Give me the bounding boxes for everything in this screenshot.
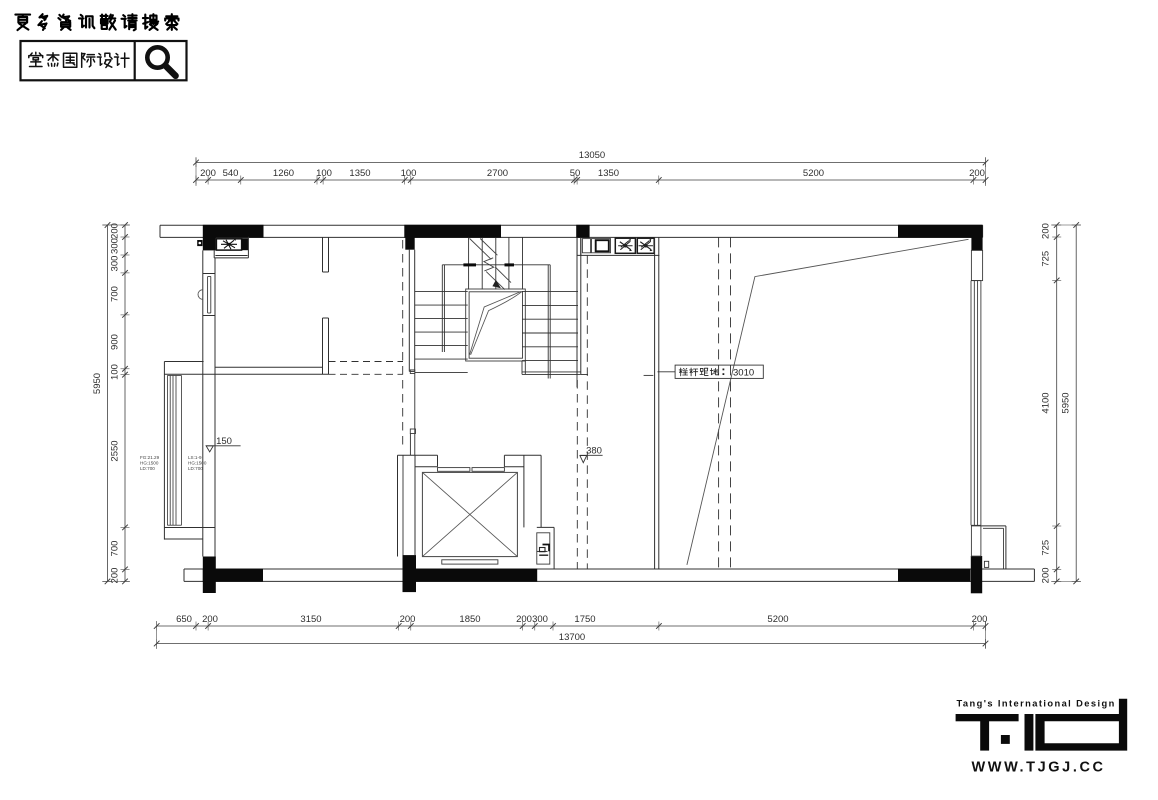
svg-text:700: 700 — [110, 286, 121, 302]
svg-text:100: 100 — [401, 168, 417, 179]
svg-text:HG:1500: HG:1500 — [140, 461, 159, 466]
svg-text:200: 200 — [516, 614, 532, 625]
svg-text:13050: 13050 — [579, 150, 605, 161]
svg-text:1260: 1260 — [273, 168, 294, 179]
svg-text:WWW.TJGJ.CC: WWW.TJGJ.CC — [972, 760, 1106, 776]
svg-text:LD:700: LD:700 — [140, 466, 155, 471]
svg-text:3010: 3010 — [733, 368, 754, 379]
svg-text:300: 300 — [110, 256, 121, 272]
svg-text:LD:700: LD:700 — [188, 466, 203, 471]
svg-text:5200: 5200 — [767, 614, 788, 625]
svg-text:50: 50 — [570, 168, 581, 179]
svg-text:1850: 1850 — [459, 614, 480, 625]
svg-text:200: 200 — [200, 168, 216, 179]
svg-text:1350: 1350 — [349, 168, 370, 179]
svg-text:200: 200 — [110, 223, 121, 239]
svg-text:300: 300 — [110, 238, 121, 254]
svg-text:2700: 2700 — [487, 168, 508, 179]
svg-text:200: 200 — [969, 168, 985, 179]
svg-text:725: 725 — [1041, 540, 1052, 556]
svg-text:5950: 5950 — [92, 373, 103, 394]
svg-text:1750: 1750 — [574, 614, 595, 625]
svg-text:4100: 4100 — [1041, 392, 1052, 413]
svg-text:Tang's International Design: Tang's International Design — [957, 698, 1116, 708]
svg-text:700: 700 — [110, 541, 121, 557]
svg-text:3150: 3150 — [300, 614, 321, 625]
svg-text:5200: 5200 — [803, 168, 824, 179]
svg-text:380: 380 — [586, 446, 602, 457]
svg-text:HG:1500: HG:1500 — [188, 461, 207, 466]
svg-text:200: 200 — [1041, 567, 1052, 583]
svg-text:100: 100 — [316, 168, 332, 179]
svg-text:200: 200 — [972, 614, 988, 625]
svg-text:FG:21.29: FG:21.29 — [140, 455, 160, 460]
svg-text:200: 200 — [110, 568, 121, 584]
svg-text:100: 100 — [110, 364, 121, 380]
svg-text:300: 300 — [532, 614, 548, 625]
svg-text:13700: 13700 — [559, 632, 585, 643]
svg-text:200: 200 — [1041, 223, 1052, 239]
svg-text:725: 725 — [1041, 251, 1052, 267]
svg-text:LS:1-9: LS:1-9 — [188, 455, 202, 460]
svg-text:200: 200 — [400, 614, 416, 625]
svg-text:150: 150 — [216, 436, 232, 447]
svg-text:540: 540 — [223, 168, 239, 179]
svg-text:650: 650 — [176, 614, 192, 625]
svg-text:200: 200 — [202, 614, 218, 625]
svg-text:1350: 1350 — [598, 168, 619, 179]
svg-text:2550: 2550 — [110, 440, 121, 461]
svg-text:5950: 5950 — [1061, 392, 1072, 413]
svg-text:900: 900 — [110, 334, 121, 350]
